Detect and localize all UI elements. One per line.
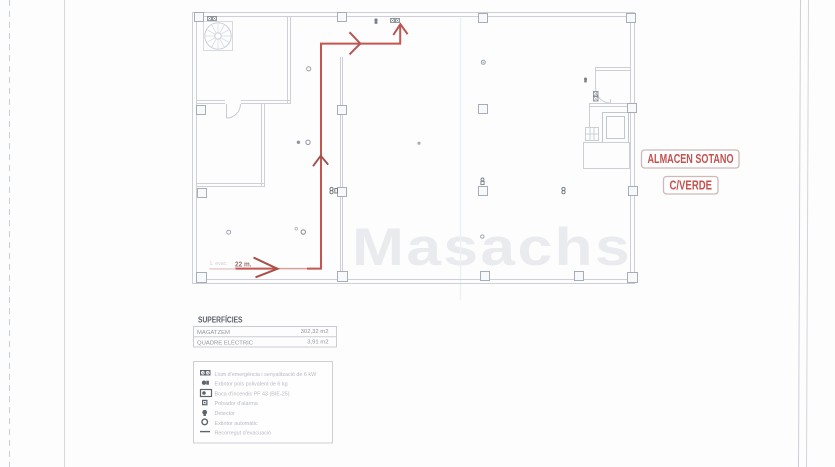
- svg-text:Extintor automàtic: Extintor automàtic: [215, 421, 258, 427]
- svg-text:Boca d'incendis PF 43 (BIE-25): Boca d'incendis PF 43 (BIE-25): [215, 391, 290, 397]
- svg-text:Masachs: Masachs: [352, 218, 632, 277]
- svg-text:C/VERDE: C/VERDE: [670, 179, 713, 193]
- svg-text:302,32 m2: 302,32 m2: [301, 329, 329, 335]
- svg-text:Extintor pols polivalent de 6: Extintor pols polivalent de 6 kg: [215, 382, 288, 388]
- svg-text:Recorregut d'evacuació: Recorregut d'evacuació: [215, 431, 271, 437]
- svg-text:Polsador d'alarma: Polsador d'alarma: [215, 401, 258, 407]
- svg-text:MAGATZEM: MAGATZEM: [197, 330, 230, 336]
- svg-text:22 m.: 22 m.: [235, 260, 252, 269]
- svg-text:ALMACEN SOTANO: ALMACEN SOTANO: [648, 152, 734, 166]
- svg-text:Detector: Detector: [215, 411, 236, 417]
- svg-text:3,91 m2: 3,91 m2: [307, 340, 328, 346]
- svg-text:SUPERFÍCIES: SUPERFÍCIES: [198, 316, 243, 325]
- svg-text:Llum d'emergència i senyalitza: Llum d'emergència i senyalització de 6 k…: [215, 372, 318, 378]
- svg-text:1. evac.: 1. evac.: [210, 261, 228, 267]
- svg-text:QUADRE ELÈCTRIC: QUADRE ELÈCTRIC: [197, 340, 254, 347]
